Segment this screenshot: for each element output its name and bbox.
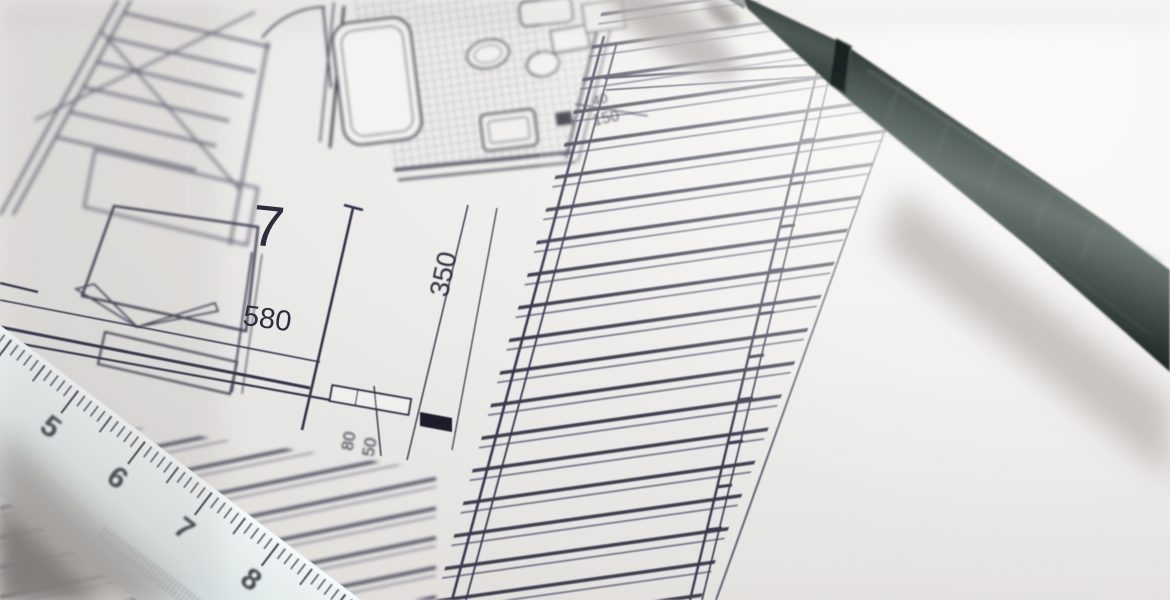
photo-canvas: 7 580 350 80 50 40 150 4 5 6 7 8 bbox=[0, 0, 1170, 600]
photo-of-floor-plan: 7 580 350 80 50 40 150 4 5 6 7 8 bbox=[0, 0, 1170, 600]
